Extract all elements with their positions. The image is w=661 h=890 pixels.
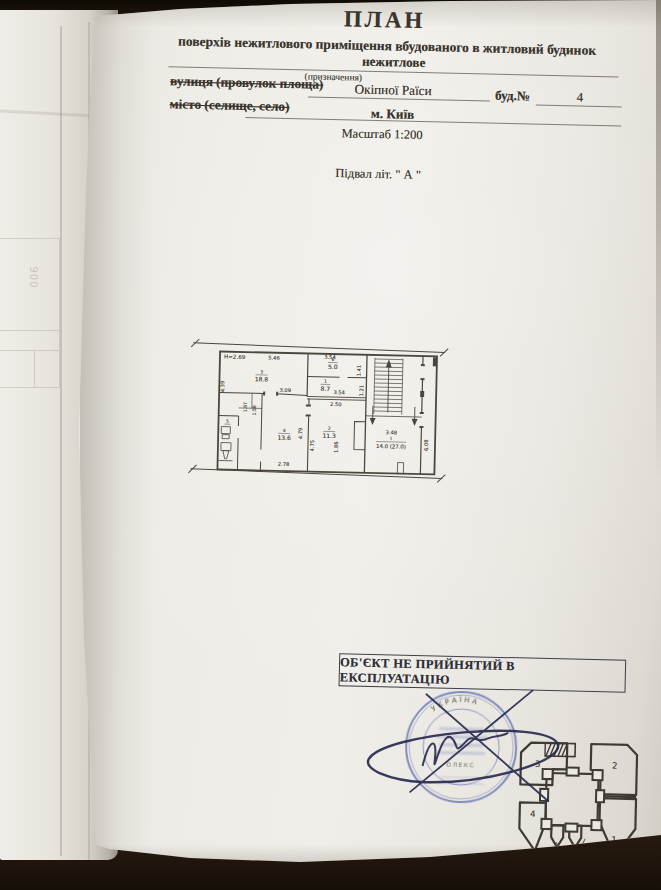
dimension-label: 1.58 — [252, 405, 257, 415]
room-number: 2 — [328, 426, 331, 431]
room-area: 5.0 — [328, 363, 338, 370]
scale-label: Масштаб 1:200 — [282, 125, 482, 145]
building-number: 4 — [540, 89, 620, 107]
dimension-label: 2.50 — [330, 401, 342, 407]
underlying-table-fragment: 900 — [0, 238, 64, 390]
height-note: Н=2.69 — [224, 354, 246, 360]
photo-edge-shadow — [656, 0, 661, 480]
dimension-label: 5.46 — [268, 355, 280, 361]
room-area: 14.0 (27.0) — [376, 443, 406, 450]
dimension-label: 1.86 — [333, 441, 339, 453]
dimension-label: 2.78 — [278, 461, 290, 467]
room-area: 11.3 — [322, 432, 336, 439]
section-number: 2 — [612, 760, 618, 770]
section-number: 1 — [611, 834, 617, 844]
room-number: I — [390, 435, 392, 441]
dimension-label: 4.39 — [219, 381, 225, 393]
plan-caption: Підвал літ. " А " — [278, 165, 478, 185]
building-label: буд.№ — [495, 88, 530, 105]
city-field-label: місто (селище, село) — [170, 96, 290, 115]
photographed-document: 900 ПЛАН поверхів нежитлового приміщення… — [0, 0, 661, 890]
room-area: 8.7 — [320, 385, 330, 392]
room-area: 13.6 — [277, 434, 291, 441]
dimension-label: 4.75 — [309, 440, 315, 452]
room-number: 1 — [324, 379, 327, 384]
dimension-label: 1.21 — [358, 385, 364, 397]
dimension-label: 6.08 — [423, 439, 429, 451]
room-number: 4 — [283, 428, 286, 433]
dimension-label: 4.79 — [297, 427, 303, 439]
room-number: 5 — [226, 419, 229, 424]
document-page: ПЛАН поверхів нежитлового приміщення вбу… — [0, 0, 661, 890]
underlying-faint-text: 900 — [28, 266, 39, 288]
dimension-label: 1.41 — [356, 365, 362, 377]
room-number: 6 — [331, 357, 334, 362]
room-number: 3 — [260, 369, 263, 374]
dimension-label: 3.09 — [279, 387, 291, 393]
handwritten-signature — [352, 669, 580, 824]
dimension-label: 3.54 — [324, 354, 336, 360]
room-area: 18.8 — [255, 375, 269, 382]
page-edge — [60, 26, 62, 856]
dimension-label: 1.67 — [243, 402, 248, 412]
dimension-label: 3.54 — [333, 389, 345, 395]
page-edge — [0, 109, 96, 117]
floorplan-drawing: Н=2.69 5.46 3.54 1.41 4.39 3.09 3.54 2.5… — [187, 330, 452, 484]
